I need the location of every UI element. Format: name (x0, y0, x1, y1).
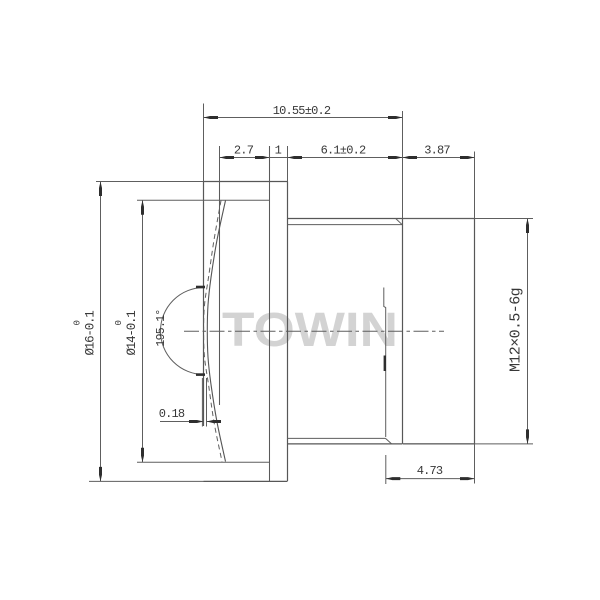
svg-text:6.1±0.2: 6.1±0.2 (321, 143, 366, 157)
svg-text:195.1°: 195.1° (155, 309, 168, 346)
svg-text:M12×0.5-6g: M12×0.5-6g (508, 288, 525, 372)
svg-text:0.18: 0.18 (159, 407, 185, 421)
svg-text:2.7: 2.7 (234, 143, 254, 157)
svg-text:1: 1 (275, 143, 282, 157)
svg-text:0: 0 (114, 320, 124, 325)
svg-text:10.55±0.2: 10.55±0.2 (273, 104, 331, 118)
svg-text:TOWIN: TOWIN (222, 304, 398, 357)
svg-text:0: 0 (73, 320, 83, 325)
svg-text:Ø14-0.1: Ø14-0.1 (125, 311, 139, 356)
svg-text:4.73: 4.73 (417, 464, 443, 478)
svg-text:Ø16-0.1: Ø16-0.1 (84, 311, 98, 356)
svg-text:3.87: 3.87 (424, 143, 450, 157)
